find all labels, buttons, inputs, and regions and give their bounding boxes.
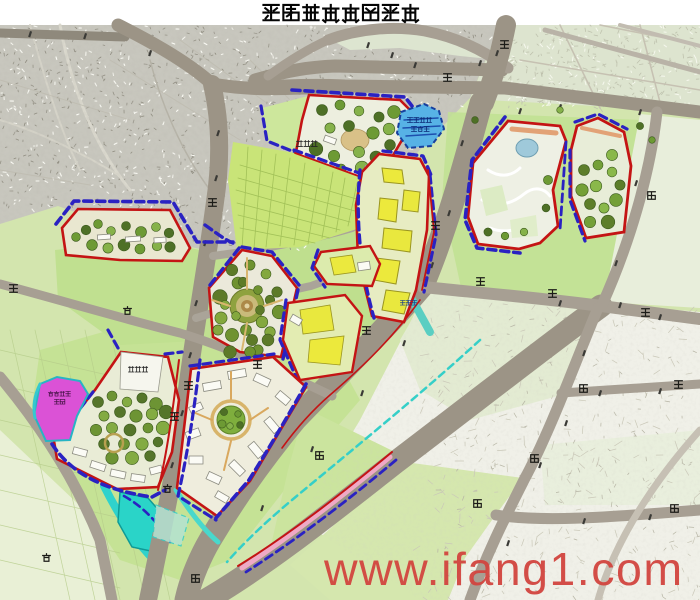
svg-text:www.ifang1.com: www.ifang1.com — [323, 543, 684, 595]
